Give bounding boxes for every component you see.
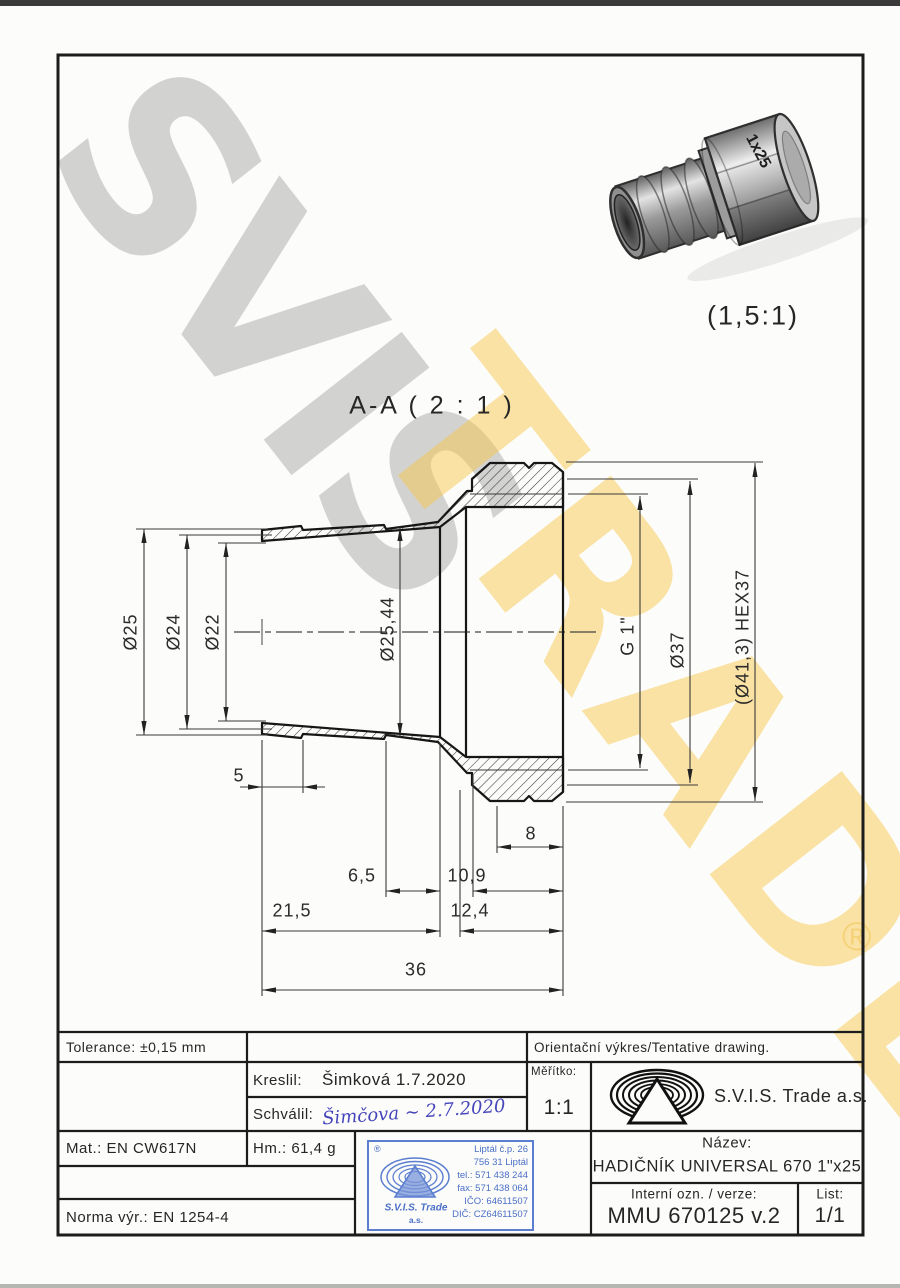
stamp-fax-line: fax: 571 438 064 (457, 1183, 528, 1194)
dim-d25: Ø25 (121, 613, 142, 650)
stamp-ico-line: IČO: 64611507 (464, 1196, 528, 1207)
tolerance-note: Tolerance: ±0,15 mm (66, 1039, 206, 1055)
dim-hex37: (Ø41,3) HEX37 (733, 569, 754, 705)
approved-by-label: Schválil: (253, 1106, 313, 1123)
dim-d24: Ø24 (164, 613, 185, 650)
three-d-render: 1x25 (597, 98, 872, 307)
dim-d37: Ø37 (668, 631, 689, 668)
drawn-by-label: Kreslil: (253, 1072, 302, 1089)
dim-len5: 5 (233, 766, 244, 787)
stamp-company-suffix: a.s. (409, 1215, 423, 1225)
standard-value: Norma výr.: EN 1254-4 (66, 1209, 229, 1226)
dim-g1: G 1" (618, 616, 639, 655)
sheet-label: List: (816, 1187, 843, 1202)
sheet-value: 1/1 (815, 1204, 846, 1228)
name-label: Název: (702, 1135, 752, 1152)
dim-len109: 10,9 (447, 866, 486, 887)
render-scale-caption: (1,5:1) (707, 301, 799, 332)
tentative-drawing-note: Orientační výkres/Tentative drawing. (534, 1040, 770, 1055)
dim-len215: 21,5 (272, 901, 311, 922)
stamp-address-line1: Liptál č.p. 26 (474, 1144, 528, 1155)
dim-d22: Ø22 (203, 613, 224, 650)
section-title: A-A ( 2 : 1 ) (349, 392, 514, 421)
drawing-sheet: SVIS TRADE ® (0, 0, 900, 1288)
stamp-address-line2: 756 31 Liptál (474, 1157, 528, 1168)
company-name: S.V.I.S. Trade a.s. (714, 1086, 868, 1107)
scale-value: 1:1 (544, 1096, 575, 1120)
part-name: HADIČNÍK UNIVERSAL 670 1"x25 (593, 1158, 862, 1177)
stamp-dic-line: DIČ: CZ64611507 (452, 1209, 528, 1220)
dim-len65: 6,5 (348, 866, 376, 887)
dim-len124: 12,4 (450, 901, 489, 922)
mass-value: Hm.: 61,4 g (253, 1140, 336, 1157)
drawn-by-value: Šimková 1.7.2020 (322, 1070, 466, 1090)
internal-id-value: MMU 670125 v.2 (608, 1203, 781, 1229)
dim-d2544: Ø25,44 (378, 596, 399, 661)
stamp-phone-line: tel.: 571 438 244 (457, 1170, 528, 1181)
stamp-company-name: S.V.I.S. Trade (385, 1203, 448, 1214)
company-logo (611, 1070, 703, 1123)
internal-id-label: Interní ozn. / verze: (631, 1187, 757, 1202)
material-value: Mat.: EN CW617N (66, 1140, 197, 1157)
scale-label: Měřítko: (531, 1066, 577, 1078)
stamp-registered-mark: ® (374, 1144, 381, 1154)
dim-len36: 36 (405, 960, 427, 981)
dim-len8: 8 (525, 824, 536, 845)
